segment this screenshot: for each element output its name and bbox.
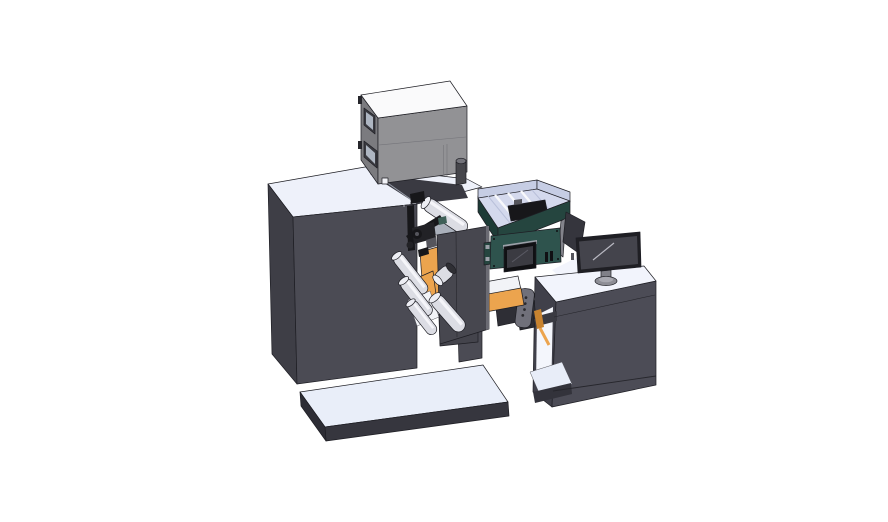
head-knob-center bbox=[415, 232, 419, 236]
housing-front-face bbox=[293, 204, 417, 384]
hmi-screw bbox=[556, 230, 558, 232]
hmi-screw bbox=[493, 265, 495, 267]
monitor-screen bbox=[579, 236, 638, 270]
hmi-screw bbox=[557, 258, 559, 260]
panel-dot bbox=[403, 205, 405, 207]
cad-render-canvas bbox=[0, 0, 888, 522]
tray-carriage-top bbox=[514, 199, 522, 205]
cad-render-stage bbox=[0, 0, 888, 522]
hmi-tab-cutout bbox=[486, 257, 490, 261]
cabinet-front-face bbox=[378, 106, 467, 184]
monitor-base-top bbox=[599, 277, 613, 283]
hmi-vent-bar bbox=[545, 252, 548, 262]
side-plate-edge bbox=[486, 226, 489, 330]
deflector-stem bbox=[571, 253, 574, 260]
operator-desk bbox=[530, 266, 656, 407]
control-cabinet bbox=[358, 81, 467, 185]
cabinet-hinge bbox=[358, 141, 362, 149]
cabinet-knob-cap bbox=[456, 158, 466, 164]
cabinet-indicator-square bbox=[382, 178, 388, 184]
hmi-tab-cutout bbox=[486, 245, 490, 249]
cabinet-hinge bbox=[358, 96, 362, 104]
hmi-vent-bar bbox=[550, 251, 553, 261]
head-roller-pin bbox=[407, 242, 414, 249]
hmi-screw bbox=[493, 238, 495, 240]
